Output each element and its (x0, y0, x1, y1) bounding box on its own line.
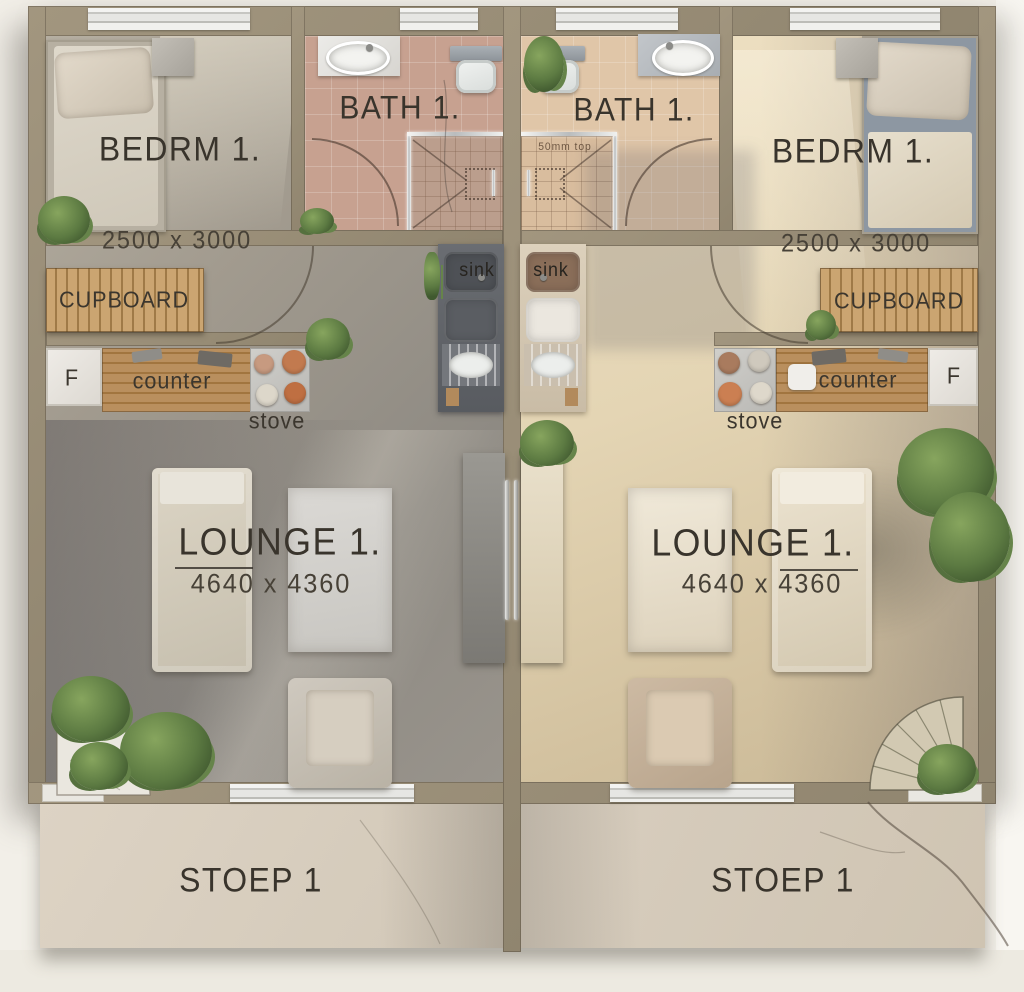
left-stoep-plant-2 (120, 712, 212, 790)
left-bedroom-window (88, 8, 250, 30)
left-stove-label: stove (249, 408, 305, 435)
left-toilet (450, 46, 502, 94)
right-bedroom-label: BEDRM 1. (772, 133, 934, 172)
left-lounge-dims: 4640 x 4360 (191, 569, 351, 600)
left-console (463, 453, 505, 663)
left-bath-window (400, 8, 478, 30)
right-sink-label: sink (533, 260, 569, 282)
right-counter-item (811, 348, 846, 365)
right-shower-handle-icon (527, 170, 530, 196)
left-dish-rack (442, 344, 500, 386)
left-bed-pillow (54, 47, 154, 120)
left-bath-basin (326, 41, 390, 75)
left-shower-glass-top (407, 132, 503, 136)
left-armchair (288, 678, 392, 788)
left-nightstand (152, 38, 194, 76)
right-stoep-palm (918, 744, 976, 794)
left-lounge-label: LOUNGE 1. (178, 522, 381, 565)
wall-right-bed-bath (719, 6, 733, 234)
left-stoep-label: STOEP 1 (179, 862, 323, 901)
left-sink-board (446, 388, 459, 406)
left-stove (250, 348, 310, 412)
left-cupboard-label: CUPBOARD (59, 287, 189, 314)
right-bath-basin (652, 40, 714, 76)
right-fridge-label: F (947, 363, 961, 390)
right-shower-glass (613, 134, 617, 232)
right-counter-item-2 (877, 348, 908, 363)
right-bath-label: BATH 1. (573, 92, 694, 129)
left-shower-drain-icon (465, 168, 495, 200)
floor-plan: BEDRM 1. 2500 x 3000 BATH 1. CUPBOARD F … (0, 0, 1024, 992)
left-bath-tap-icon (366, 44, 373, 51)
wall-right-kitchen-ledge (714, 332, 978, 346)
left-bedroom-plant (38, 196, 90, 244)
right-stoep-label: STOEP 1 (711, 862, 855, 901)
left-sofa-table (160, 472, 244, 504)
wall-left-kitchen-ledge (46, 332, 310, 346)
left-bath-label: BATH 1. (339, 90, 460, 127)
left-counter-item-2 (197, 350, 232, 367)
left-bath-vanity (318, 36, 400, 76)
right-sink-bowl-2 (526, 298, 580, 342)
left-sink-plant (424, 252, 440, 300)
left-fridge-label: F (65, 365, 79, 392)
right-bedroom-dims: 2500 x 3000 (781, 230, 931, 259)
right-sofa-table (780, 472, 864, 504)
right-tree-bottom (930, 492, 1010, 582)
right-console (521, 453, 563, 663)
right-stove (714, 348, 776, 412)
wall-center-divider (503, 6, 521, 952)
right-kitchen-plant (806, 310, 836, 340)
right-nightstand (836, 38, 878, 78)
left-kitchen-plant (306, 318, 350, 360)
right-lounge-dims: 4640 x 4360 (682, 569, 842, 600)
right-dish-rack (524, 344, 582, 386)
right-bedroom-window (790, 8, 940, 30)
right-armchair (628, 678, 732, 788)
right-bath-window (556, 8, 678, 30)
right-bath-tap-icon (666, 42, 673, 49)
right-counter-label: counter (819, 367, 898, 394)
right-shower-glass-top (521, 132, 617, 136)
page-background-right (996, 0, 1024, 992)
center-plant (520, 420, 574, 466)
page-background-bottom (0, 950, 1024, 992)
right-shower-drain-icon (535, 168, 565, 200)
right-sink-board (565, 388, 578, 406)
center-door-handle-left (505, 480, 509, 620)
left-shower-handle-icon (492, 170, 495, 196)
right-bed-pillow (866, 41, 972, 120)
left-sink-label: sink (459, 260, 495, 282)
left-counter-label: counter (133, 368, 212, 395)
right-counter-kettle (788, 364, 816, 390)
right-shower-note: 50mm top (538, 141, 592, 153)
wall-left-bed-bath (291, 6, 305, 234)
wall-left (28, 6, 46, 800)
left-bedroom-label: BEDRM 1. (99, 131, 261, 170)
right-lounge-label: LOUNGE 1. (651, 523, 854, 566)
left-stoep-plant-3 (70, 742, 128, 790)
right-stove-label: stove (727, 408, 783, 435)
right-bath-vanity (638, 34, 720, 76)
right-bath-plant (524, 36, 564, 92)
left-bedroom-dims: 2500 x 3000 (102, 227, 252, 256)
left-stoep-plant-1 (52, 676, 130, 742)
left-shower-glass (407, 134, 411, 232)
right-cupboard-label: CUPBOARD (834, 288, 964, 315)
wall-right (978, 6, 996, 800)
left-counter-item (131, 348, 162, 363)
left-sink-bowl-2 (444, 298, 498, 342)
left-bath-plant (300, 208, 334, 234)
center-door-handle-right (514, 480, 518, 620)
